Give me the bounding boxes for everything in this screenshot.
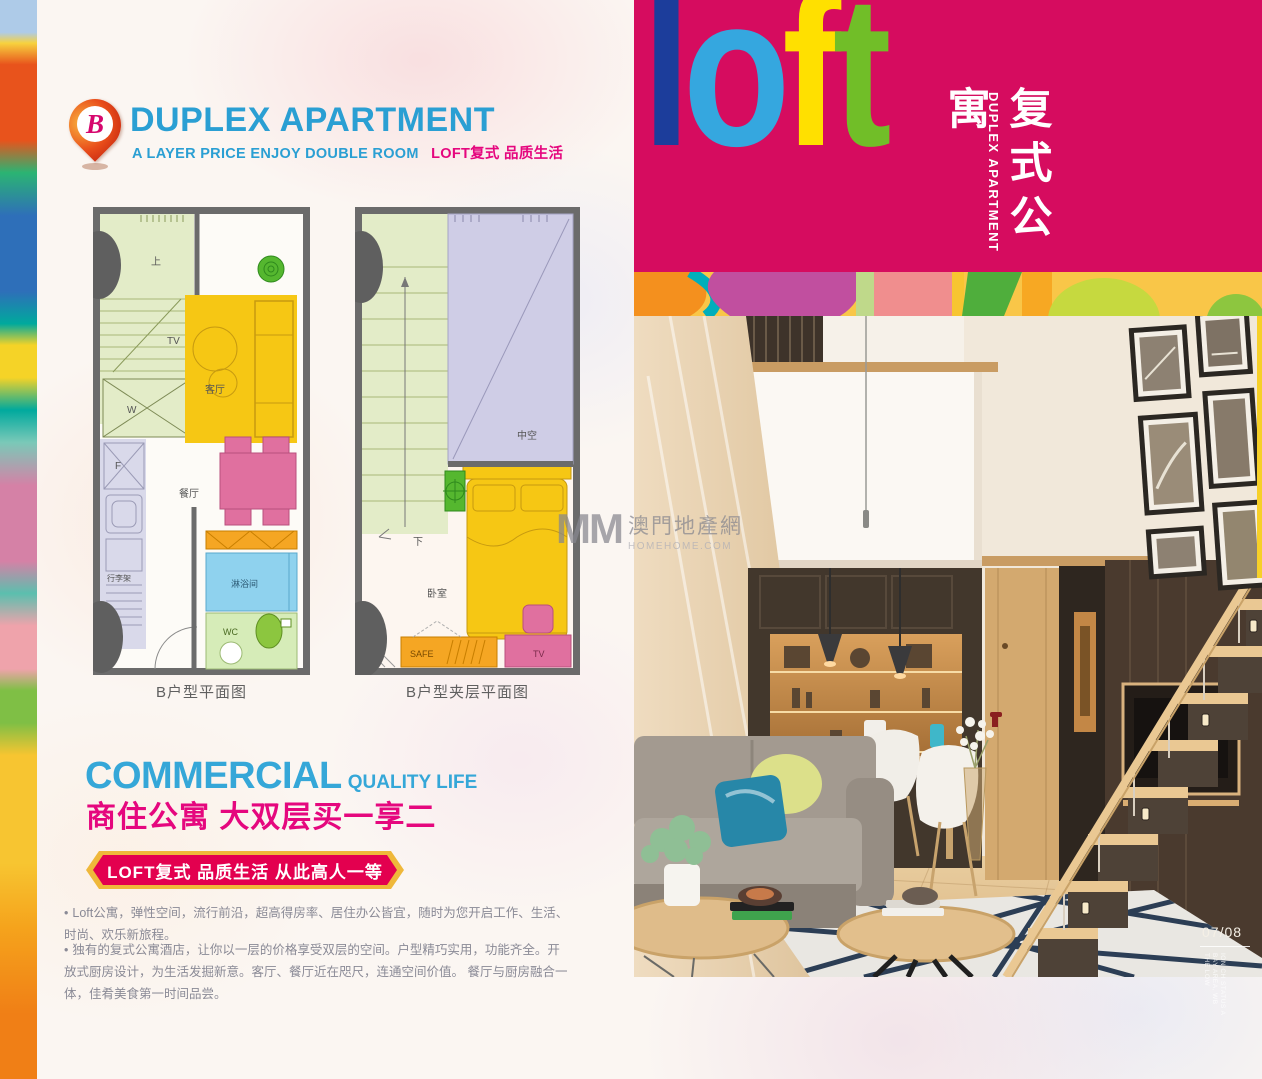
teal-pillow [714,774,789,849]
loft-wordmark: loft [642,0,883,200]
interior-photo [634,316,1262,977]
plan1-cabinet [206,531,297,549]
room-label-dining: 餐厅 [179,487,199,500]
subtitle-chinese: LOFT复式 品质生活 [431,146,563,162]
page-subtitle: A LAYER PRICE ENJOY DOUBLE ROOM LOFT复式 品… [132,142,563,163]
watermark-site: HOMEHOME.COM [628,541,743,552]
room-label-tv2: TV [533,649,545,659]
right-edge-accent [1257,316,1262,578]
subtitle-english: A LAYER PRICE ENJOY DOUBLE ROOM [132,146,419,162]
plan1-caption: B户型平面图 [93,681,310,702]
slogan-banner: LOFT复式 品质生活 从此高人一等 [86,851,404,889]
floorplan-unit-b: 上 W F 行李架 [93,207,310,675]
room-label-luggage: 行李架 [107,573,131,583]
commercial-title-sub: QUALITY LIFE [348,772,477,793]
page-number: 07/08 [1202,924,1242,940]
site-watermark: MM 澳門地產網 HOMEHOME.COM [556,510,743,552]
bullet-point-2: •独有的复式公寓酒店，让你以一层的价格享受双层的空间。户型精巧实用，功能齐全。开… [64,940,569,1006]
plan1-wc [206,613,297,669]
plan2-void [448,214,573,464]
room-label-safe: SAFE [410,649,434,659]
room-label-wc: WC [223,627,238,637]
floorplan-mezzanine: 下 中空 卧室 [355,207,580,675]
slogan-banner-text: LOFT复式 品质生活 从此高人一等 [93,855,397,885]
blue-bottle [930,724,944,748]
plan2-caption: B户型夹层平面图 [355,681,580,702]
commercial-title-main: COMMERCIAL [85,755,342,797]
page-title: DUPLEX APARTMENT [130,101,495,140]
loft-title-block: loft 复式公寓 DUPLEX APARTMENT [634,0,1262,272]
room-label-tv: TV [167,336,180,347]
room-label-living: 客厅 [205,383,225,396]
photo-side-caption: THE LOW BAY AREA, WB ION CH STATUS A [1203,953,1226,1053]
room-label-up: 上 [151,256,161,268]
plan1-plant [258,256,284,282]
entry-door [985,568,1059,880]
room-label-wardrobe: W [127,405,137,416]
watermark-chinese: 澳門地產網 [628,510,743,540]
room-label-fridge: F [115,461,121,472]
plan1-wardrobe [103,379,191,437]
plan1-living-room [185,295,297,443]
left-color-strip [0,0,37,1079]
room-label-bedroom: 卧室 [427,587,447,600]
room-label-void: 中空 [517,429,537,442]
location-pin-logo: B [66,97,124,177]
watermark-logo: MM [556,510,622,548]
page-number-rule [1200,946,1250,947]
rainbow-band [634,272,1262,316]
room-label-down: 下 [413,537,423,548]
pin-shadow [82,163,108,170]
brochure-page: B DUPLEX APARTMENT A LAYER PRICE ENJOY D… [0,0,1262,1079]
loft-english-vertical: DUPLEX APARTMENT [986,92,1001,253]
commercial-headline-cn: 商住公寓 大双层买一享二 [86,792,436,836]
room-label-shower: 淋浴间 [231,578,258,589]
pin-letter: B [77,106,113,142]
